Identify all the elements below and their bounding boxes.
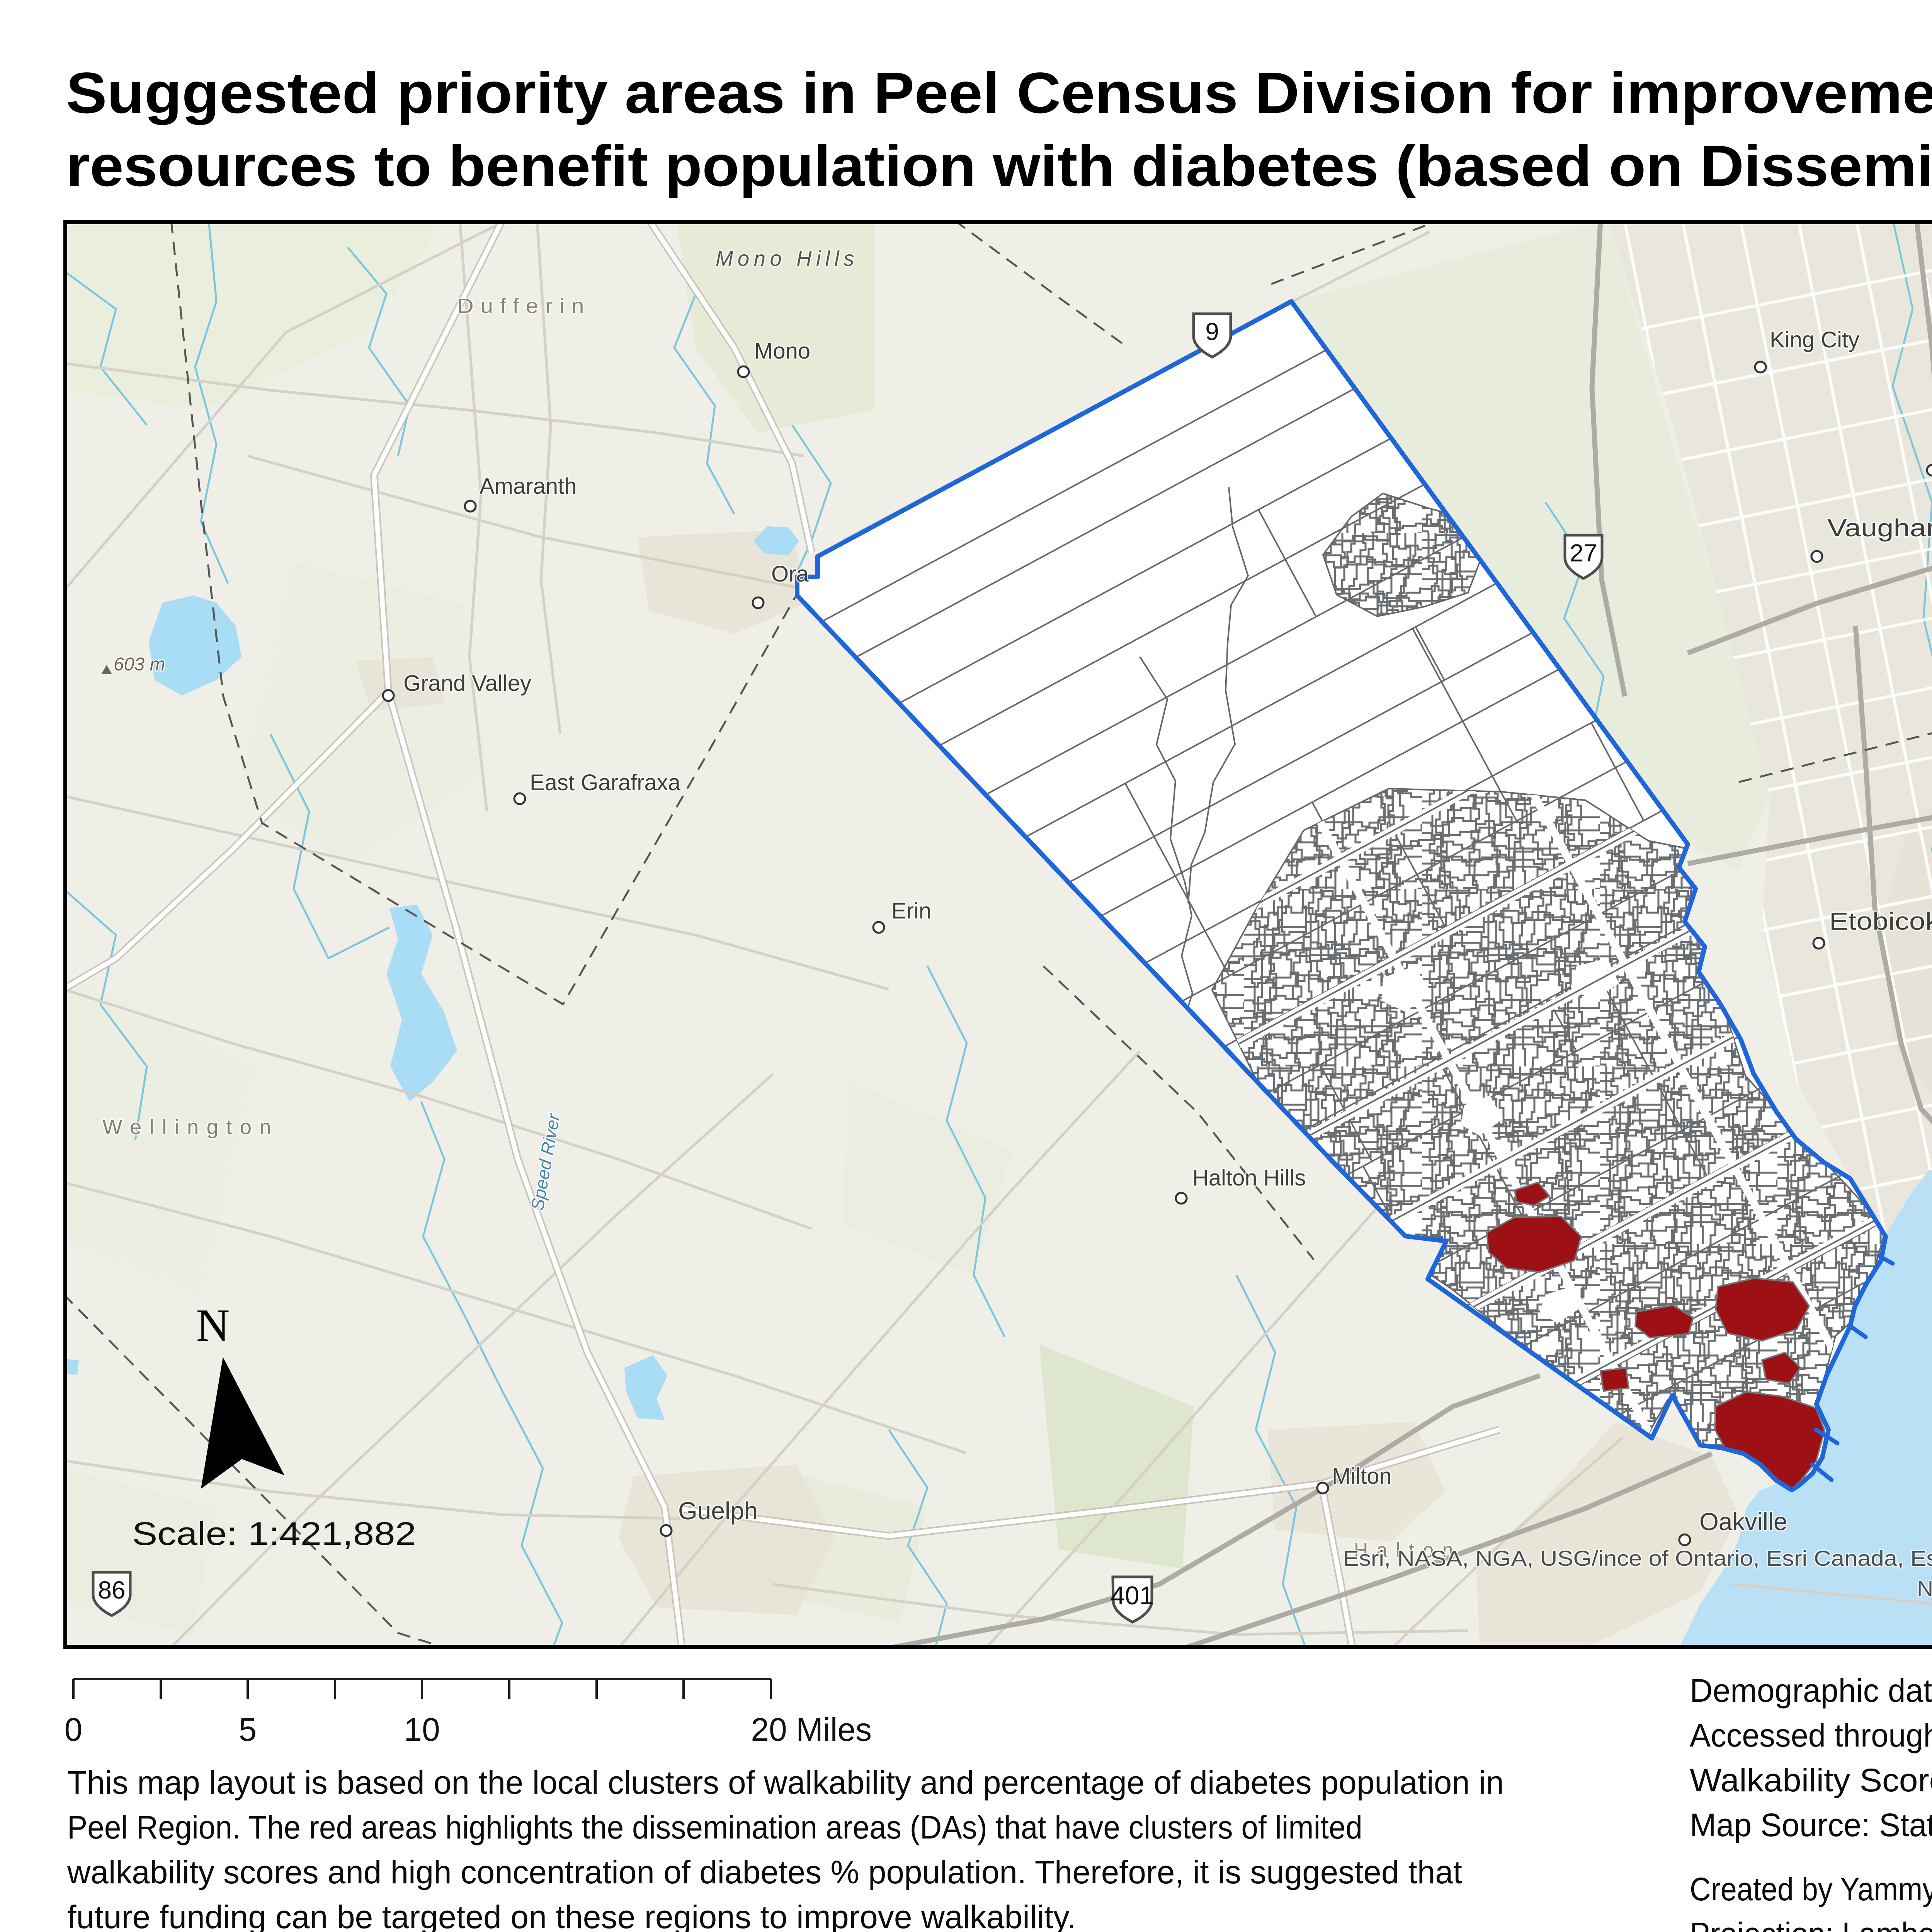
svg-text:9: 9 [1205, 318, 1219, 345]
svg-text:Milton: Milton [1332, 1464, 1392, 1489]
svg-text:5: 5 [239, 1711, 257, 1748]
svg-text:Wellington: Wellington [102, 1116, 279, 1139]
svg-text:Suggested priority areas in Pe: Suggested priority areas in Peel Census … [66, 60, 1932, 125]
svg-text:Accessed through: Simply Analy: Accessed through: Simply Analytics [1690, 1717, 1932, 1753]
svg-text:Mono Hills: Mono Hills [716, 246, 859, 270]
svg-text:Projection: Lambert Conformal: Projection: Lambert Conformal Conic [1690, 1916, 1932, 1932]
svg-text:This map layout is based on th: This map layout is based on the local cl… [67, 1764, 1504, 1801]
svg-text:Etobicoke: Etobicoke [1829, 907, 1932, 935]
svg-text:603 m: 603 m [114, 654, 165, 675]
svg-text:Miles: Miles [796, 1711, 872, 1748]
svg-text:Created by Yammy Ma (1 Nov 202: Created by Yammy Ma (1 Nov 2025) [1690, 1871, 1932, 1907]
svg-text:86: 86 [98, 1576, 125, 1604]
svg-text:27: 27 [1570, 539, 1597, 567]
svg-text:Esri, NASA, NGA, USG/ince of O: Esri, NASA, NGA, USG/ince of Ontario, Es… [1343, 1546, 1932, 1570]
svg-text:Halton Hills: Halton Hills [1192, 1165, 1306, 1190]
svg-text:resources to benefit populatio: resources to benefit population with dia… [66, 133, 1932, 198]
svg-text:Guelph: Guelph [678, 1497, 758, 1525]
svg-text:walkability scores and high co: walkability scores and high concentratio… [67, 1854, 1462, 1890]
svg-text:Oakville: Oakville [1699, 1508, 1787, 1536]
svg-text:Grand Valley: Grand Valley [403, 671, 531, 696]
svg-text:East Garafraxa: East Garafraxa [530, 770, 681, 795]
svg-text:Demographic data source: Stati: Demographic data source: Statistics Cana… [1690, 1672, 1932, 1709]
svg-text:Walkability Score Source: CANU: Walkability Score Source: CANUE - ALE 20… [1690, 1762, 1932, 1798]
svg-text:Dufferin: Dufferin [457, 294, 591, 318]
svg-text:Vaughan: Vaughan [1827, 514, 1932, 542]
svg-text:Erin: Erin [891, 898, 931, 923]
svg-text:future funding can be targeted: future funding can be targeted on these … [67, 1899, 1076, 1932]
svg-text:0: 0 [65, 1711, 83, 1748]
svg-text:NASA, USGS, EPA, NPS, NRCan, P: NASA, USGS, EPA, NPS, NRCan, Parks Canad… [1917, 1576, 1932, 1600]
svg-text:Map Source: Statistics Canada: Map Source: Statistics Canada 2021 [1690, 1807, 1932, 1843]
svg-text:10: 10 [404, 1711, 440, 1748]
svg-text:401: 401 [1111, 1581, 1154, 1610]
svg-text:Ora: Ora [771, 561, 809, 587]
svg-text:Scale: 1:421,882: Scale: 1:421,882 [132, 1515, 416, 1552]
svg-text:Mono: Mono [754, 338, 810, 364]
svg-text:King City: King City [1770, 327, 1859, 352]
svg-text:Peel Region. The red areas hig: Peel Region. The red areas highlights th… [67, 1809, 1362, 1845]
svg-text:20: 20 [751, 1711, 787, 1748]
svg-text:N: N [196, 1299, 230, 1351]
svg-text:Amaranth: Amaranth [480, 474, 577, 499]
